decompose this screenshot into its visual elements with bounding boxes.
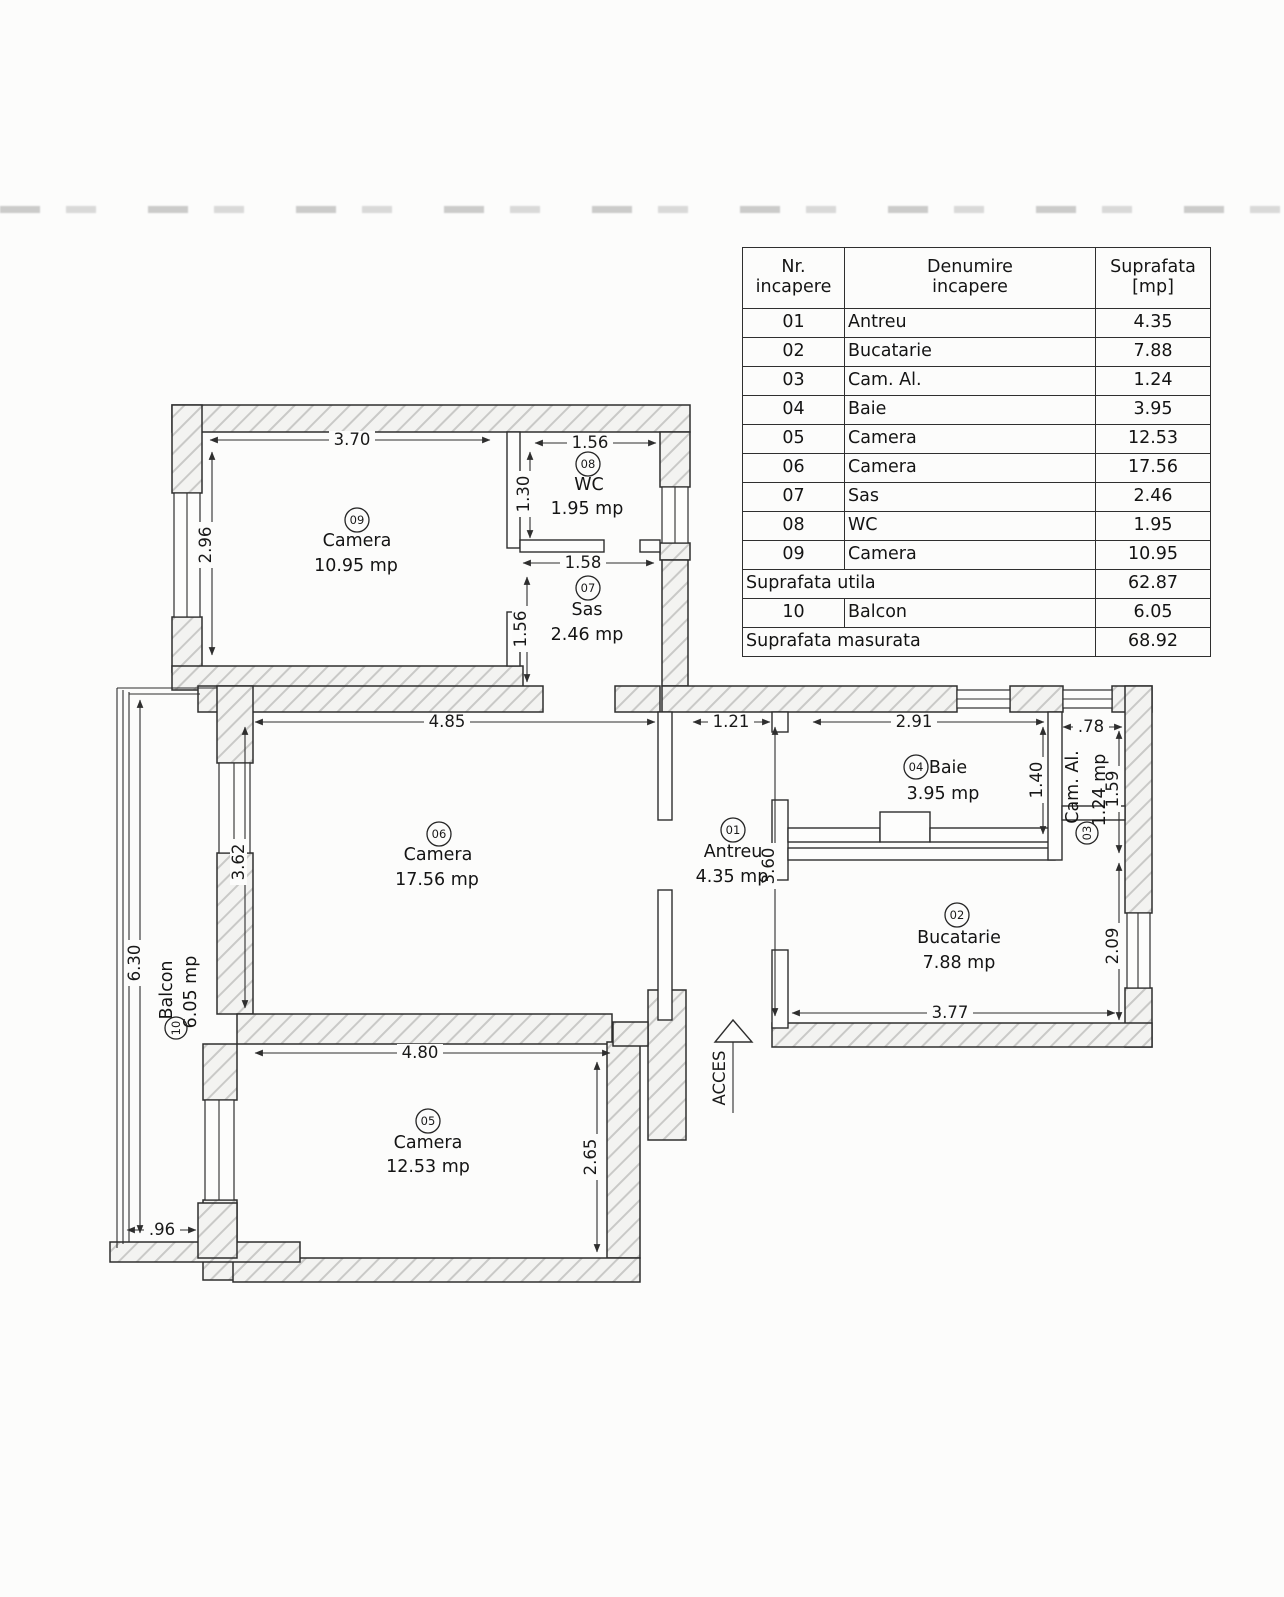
dim-room09-width: 3.70 xyxy=(210,430,490,449)
room-label-camera-05: 05 Camera 12.53 mp xyxy=(386,1109,470,1177)
dim-bucatarie-width: 3.77 xyxy=(792,1003,1115,1022)
svg-text:3.77: 3.77 xyxy=(932,1003,969,1022)
svg-text:3.70: 3.70 xyxy=(334,430,371,449)
svg-text:2.91: 2.91 xyxy=(896,712,933,731)
svg-text:10.95 mp: 10.95 mp xyxy=(314,556,398,576)
svg-text:Camera: Camera xyxy=(394,1133,463,1153)
svg-text:6.05 mp: 6.05 mp xyxy=(181,956,201,1029)
dim-sas-width: 1.58 xyxy=(523,553,654,572)
svg-text:6.30: 6.30 xyxy=(125,945,144,982)
svg-text:.96: .96 xyxy=(149,1220,175,1239)
svg-text:10: 10 xyxy=(169,1021,183,1036)
acces-label: ACCES xyxy=(710,1051,729,1106)
dim-balcon-width: .96 xyxy=(127,1220,196,1239)
window xyxy=(662,487,688,543)
room-label-camera-09: 09 Camera 10.95 mp xyxy=(314,508,398,576)
svg-text:1.30: 1.30 xyxy=(514,476,533,513)
svg-text:1.56: 1.56 xyxy=(572,433,609,452)
svg-text:07: 07 xyxy=(581,581,596,595)
dim-baie-height: 1.40 xyxy=(1027,727,1046,834)
room-label-sas-07: 07 Sas 2.46 mp xyxy=(551,576,624,645)
svg-text:4.85: 4.85 xyxy=(429,712,466,731)
svg-text:1.58: 1.58 xyxy=(565,553,602,572)
svg-text:12.53 mp: 12.53 mp xyxy=(386,1157,470,1177)
svg-text:Bucatarie: Bucatarie xyxy=(917,928,1001,948)
svg-text:09: 09 xyxy=(350,513,365,527)
svg-text:05: 05 xyxy=(421,1114,436,1128)
svg-text:2.96: 2.96 xyxy=(196,527,215,564)
dim-balcon-height: 6.30 xyxy=(125,700,144,1233)
svg-text:1.95 mp: 1.95 mp xyxy=(551,499,624,519)
svg-text:Cam. Al.: Cam. Al. xyxy=(1063,750,1083,824)
svg-text:4.35 mp: 4.35 mp xyxy=(696,867,769,887)
svg-text:02: 02 xyxy=(950,908,965,922)
dim-room06-width: 4.85 xyxy=(255,712,655,731)
room-label-balcon-10: Balcon 6.05 mp 10 xyxy=(157,956,201,1039)
svg-text:2.65: 2.65 xyxy=(581,1139,600,1176)
room-label-wc-08: 08 WC 1.95 mp xyxy=(551,452,624,519)
svg-text:3.62: 3.62 xyxy=(229,844,248,881)
exterior-walls xyxy=(110,405,1152,1282)
window xyxy=(205,1100,234,1200)
room-label-camera-06: 06 Camera 17.56 mp xyxy=(395,822,479,890)
svg-text:Baie: Baie xyxy=(929,758,967,778)
room-label-cam-al-03: Cam. Al. 1.24 mp 03 xyxy=(1063,750,1110,844)
room-label-baie-04: 04 Baie 3.95 mp xyxy=(904,755,979,804)
svg-text:1.24 mp: 1.24 mp xyxy=(1090,754,1110,827)
dim-bucatarie-height: 2.09 xyxy=(1103,863,1122,1020)
svg-text:Balcon: Balcon xyxy=(157,960,177,1019)
dim-room05-width: 4.80 xyxy=(255,1043,610,1062)
window xyxy=(1063,690,1112,708)
acces-arrow: ACCES xyxy=(710,1020,752,1113)
svg-text:Antreu: Antreu xyxy=(704,842,763,862)
svg-text:3.95 mp: 3.95 mp xyxy=(907,784,980,804)
dim-wc-width: 1.56 xyxy=(535,433,656,452)
svg-text:06: 06 xyxy=(432,827,447,841)
floor-plan-drawing: 3.70 2.96 1.56 1.30 1.58 1. xyxy=(0,0,1284,1597)
svg-text:7.88 mp: 7.88 mp xyxy=(923,953,996,973)
svg-text:4.80: 4.80 xyxy=(402,1043,439,1062)
svg-text:2.46 mp: 2.46 mp xyxy=(551,625,624,645)
svg-text:17.56 mp: 17.56 mp xyxy=(395,870,479,890)
svg-text:WC: WC xyxy=(574,475,604,495)
dim-baie-width: 2.91 xyxy=(813,712,1044,731)
svg-text:.78: .78 xyxy=(1078,717,1104,736)
svg-text:04: 04 xyxy=(909,760,924,774)
svg-text:1.56: 1.56 xyxy=(511,611,530,648)
interior-walls xyxy=(507,432,1125,1028)
dim-camal-width: .78 xyxy=(1063,717,1122,736)
svg-text:Sas: Sas xyxy=(572,600,603,620)
svg-text:01: 01 xyxy=(726,823,741,837)
window xyxy=(957,690,1010,708)
scanned-floor-plan-page: Nr. incapere Denumire incapere Suprafata… xyxy=(0,0,1284,1597)
dim-antreu-width: 1.21 xyxy=(693,712,770,731)
svg-text:2.09: 2.09 xyxy=(1103,928,1122,965)
window xyxy=(1127,913,1150,988)
svg-text:08: 08 xyxy=(581,457,596,471)
dim-room05-height: 2.65 xyxy=(581,1062,600,1252)
room-label-antreu-01: 01 Antreu 4.35 mp xyxy=(696,818,769,887)
svg-text:Camera: Camera xyxy=(404,845,473,865)
room-label-bucatarie-02: 02 Bucatarie 7.88 mp xyxy=(917,903,1001,973)
svg-text:Camera: Camera xyxy=(323,531,392,551)
svg-text:03: 03 xyxy=(1080,826,1094,841)
svg-text:1.21: 1.21 xyxy=(713,712,750,731)
svg-text:1.40: 1.40 xyxy=(1027,762,1046,799)
